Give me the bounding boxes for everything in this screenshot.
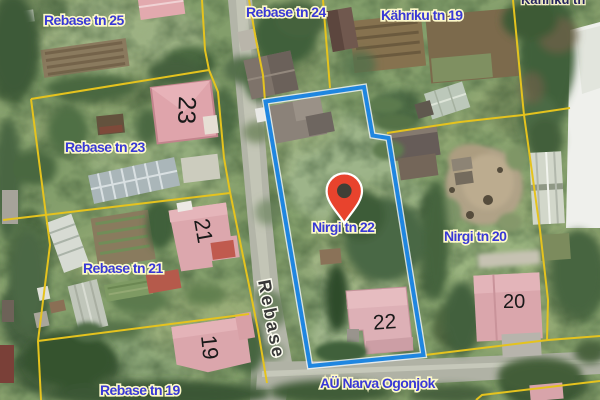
svg-text:20: 20 xyxy=(503,291,525,313)
svg-text:Rebase tn 24: Rebase tn 24 xyxy=(246,4,327,20)
svg-text:Rebase tn 19: Rebase tn 19 xyxy=(100,382,181,398)
svg-text:Rebase tn 23: Rebase tn 23 xyxy=(65,139,146,155)
svg-text:Nirgi tn 20: Nirgi tn 20 xyxy=(444,228,507,244)
svg-text:AÜ Narva Ogonjok: AÜ Narva Ogonjok xyxy=(320,375,436,391)
svg-text:23: 23 xyxy=(172,96,201,125)
svg-text:Rebase tn 21: Rebase tn 21 xyxy=(83,260,164,276)
svg-text:19: 19 xyxy=(196,334,223,361)
svg-text:22: 22 xyxy=(372,310,397,335)
svg-text:Rebase tn 25: Rebase tn 25 xyxy=(44,12,125,28)
svg-text:21: 21 xyxy=(189,217,218,245)
svg-text:Kähriku tn 19: Kähriku tn 19 xyxy=(381,7,463,23)
svg-text:Kähriku tn: Kähriku tn xyxy=(521,0,585,7)
